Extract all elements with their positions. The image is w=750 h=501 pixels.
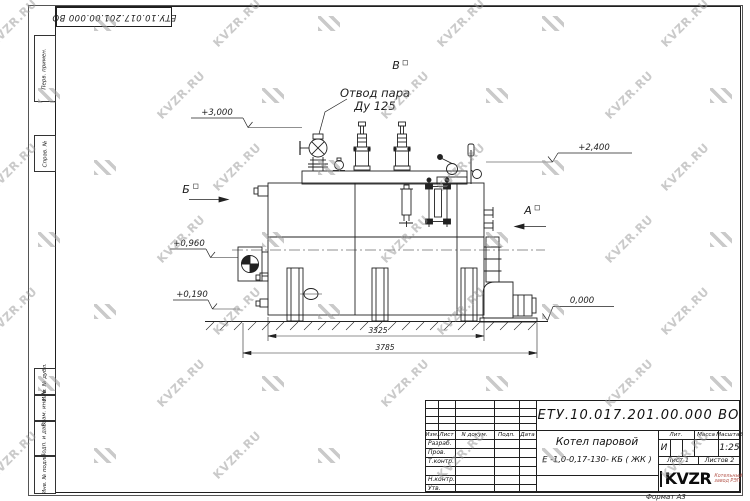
tb-row-utv: Утв. <box>426 484 457 493</box>
right-nozzles <box>484 207 493 231</box>
title-block: Изм. Лист N докум. Подп. Дата Разраб. Пр… <box>425 400 740 492</box>
kvzr-logo-text: KVZR <box>665 469 712 488</box>
tb-row-razrab: Разраб. <box>426 439 457 448</box>
elevation-marks <box>170 118 632 321</box>
tb-scale-header: Масштаб <box>718 430 741 439</box>
format-note: Формат А3 <box>646 493 686 501</box>
level-gauge-b <box>426 178 451 227</box>
elevation-2400: +2,400 <box>578 143 609 153</box>
support-legs <box>287 268 477 321</box>
small-nozzle <box>333 158 345 171</box>
view-label-b: Б <box>182 183 190 196</box>
tb-product-name-line2: Е -1,0-0,17-130- КБ ( ЖК ) <box>536 451 658 467</box>
tb-header-podp: Подп. <box>494 430 519 439</box>
tb-header-ndokum: N докум. <box>455 430 494 439</box>
tb-product-name-line1: Котел паровой <box>536 432 658 452</box>
tb-doc-number: ЕТУ.10.017.201.00.000 ВО <box>536 401 741 430</box>
tb-header-data: Дата <box>519 430 536 439</box>
tb-header-list: Лист <box>438 430 455 439</box>
tb-mass-header: Масса <box>694 430 718 439</box>
callout-text-line2: Ду 125 <box>353 99 395 113</box>
callout-text-line1: Отвод пара <box>340 86 410 100</box>
tb-row-nkontr: Н.контр. <box>426 475 457 484</box>
tb-row-prov: Пров. <box>426 448 457 457</box>
left-nozzles <box>254 186 268 307</box>
tb-lit-value: И <box>658 439 670 456</box>
tb-header-izm: Изм. <box>426 430 438 439</box>
kvzr-logo-icon <box>660 471 662 487</box>
elevation-0000: 0,000 <box>570 296 594 306</box>
elevation-0960: +0,960 <box>173 239 204 249</box>
manhole-box <box>238 247 268 281</box>
tb-scale-value: 1:25 <box>718 439 741 456</box>
company-logo: KVZR Котельный завод РЭП <box>658 464 741 493</box>
tb-row-blank <box>426 466 457 475</box>
safety-valve-2 <box>394 122 410 170</box>
callout-leader <box>319 99 347 134</box>
lever-valve <box>437 144 482 184</box>
level-gauge-a <box>399 185 413 227</box>
steam-outlet-valve <box>300 134 328 171</box>
dimension-outer: 3785 <box>375 343 394 352</box>
safety-valve-1 <box>354 122 370 170</box>
view-label-v: В <box>392 59 400 72</box>
tb-sheets-cell: Листов 2 <box>698 456 741 464</box>
tb-sheet-cell: Лист 1 <box>658 456 698 464</box>
view-label-a: А <box>523 204 532 217</box>
elevation-3000: +3,000 <box>201 108 232 118</box>
tb-lit-header: Лит. <box>658 430 694 439</box>
dimension-inner: 3325 <box>368 326 387 335</box>
elevation-0190: +0,190 <box>176 290 207 300</box>
logo-tagline-line2: завод РЭП <box>714 479 742 484</box>
tb-row-tkontr: Т.контр. <box>426 457 457 466</box>
